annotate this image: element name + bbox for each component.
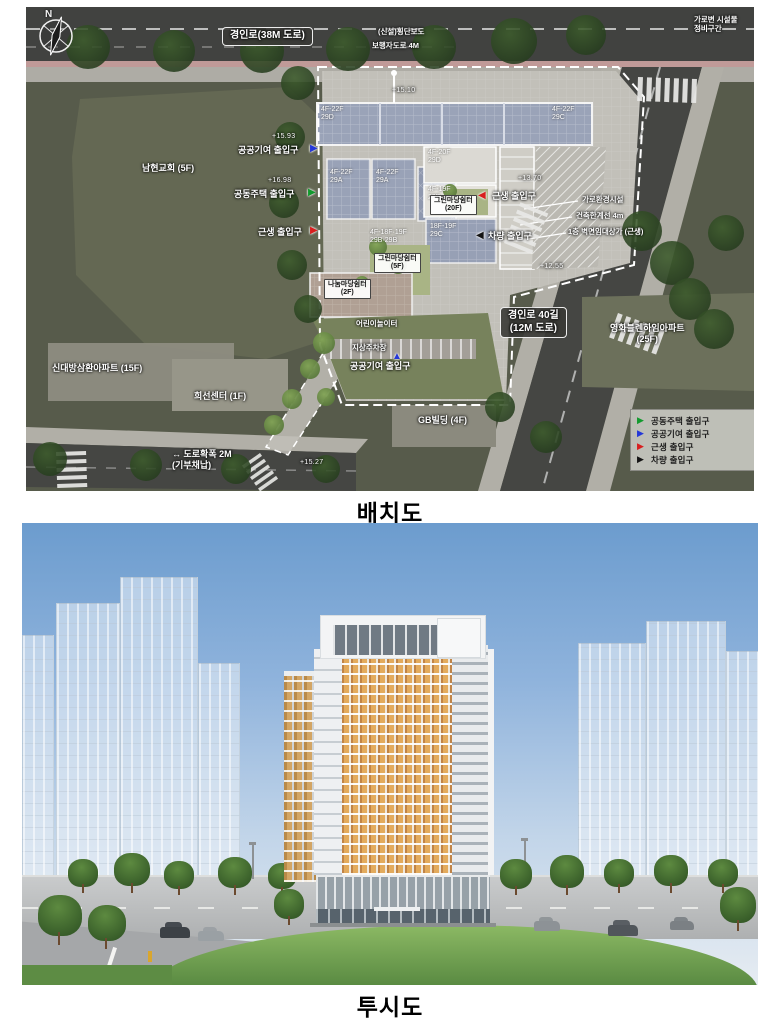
plan-annotation: 4F-22F 29A (376, 169, 399, 184)
plan-annotation: 건축한계선 4m (576, 211, 623, 220)
tree-icon (274, 889, 304, 925)
plan-annotation: 4F-22F 29D (321, 106, 344, 121)
background-building (646, 621, 726, 877)
tree-icon (218, 857, 252, 895)
tree-icon (604, 859, 634, 893)
plan-annotation: ▶ (310, 225, 318, 237)
background-building (120, 577, 198, 877)
tree-icon (164, 861, 194, 895)
legend-arrow-icon: ▶ (637, 415, 651, 426)
plan-annotation: 경인로 40길 (12M 도로) (500, 307, 567, 338)
plan-annotation: 공공기여 출입구 (238, 145, 298, 156)
car-icon (534, 921, 560, 931)
tower-right-pier (452, 645, 488, 875)
background-building (726, 651, 758, 877)
tree-icon (300, 359, 320, 379)
crown-panel (437, 618, 481, 658)
plan-annotation: +15.27 (300, 459, 323, 467)
north-compass: N (32, 11, 80, 64)
plan-annotation: 근생 출입구 (492, 191, 536, 202)
plan-annotation: 그린마당쉼터 (20F) (430, 195, 477, 215)
legend-label: 차량 출입구 (651, 454, 694, 466)
legend-item: ▶공동주택 출입구 (637, 414, 754, 427)
plan-annotation: 4F-20F 29D (428, 149, 451, 164)
legend-rows: ▶공동주택 출입구▶공공기여 출입구▶근생 출입구▶차량 출입구 (637, 414, 754, 466)
plan-annotation: 18F-19F 29C (430, 223, 456, 238)
perspective-caption: 투시도 (0, 988, 780, 1022)
car-icon (670, 921, 694, 930)
legend-label: 근생 출입구 (651, 441, 694, 453)
crown-recess (333, 625, 439, 655)
tree-icon (566, 15, 606, 55)
tree-icon (720, 887, 756, 931)
legend-item: ▶차량 출입구 (637, 453, 754, 466)
tower-crown (320, 615, 486, 659)
plan-annotation: 근생 출입구 (258, 227, 302, 238)
tree-icon (654, 855, 688, 893)
plan-annotation: 가로환경시설 (582, 195, 623, 204)
tower-edge-fin (488, 649, 494, 875)
legend-arrow-icon: ▶ (637, 441, 651, 452)
tree-icon (68, 859, 98, 893)
tree-icon (485, 392, 515, 422)
plan-annotation: 1층 벽면임대상가 (근생) (568, 227, 643, 236)
plan-annotation: 가로변 시설물 정비구간 (694, 15, 737, 33)
car-icon (198, 931, 224, 941)
plan-annotation: 영화블렌하임아파트 (25F) (610, 323, 685, 345)
plan-annotation: 남현교회 (5F) (142, 163, 194, 174)
tree-icon (491, 18, 537, 64)
plan-annotation: 4F-22F 29C (552, 106, 575, 121)
plan-annotation: (신설)횡단보도 (378, 27, 424, 36)
tree-icon (88, 905, 126, 949)
tree-icon (317, 388, 335, 406)
plan-annotation: ▶ (310, 143, 318, 155)
plan-annotation: 희선센터 (1F) (194, 391, 246, 402)
background-building (56, 603, 120, 877)
tree-icon (326, 27, 370, 71)
plan-annotation: 나눔마당쉼터 (2F) (324, 279, 371, 299)
plan-annotation: 4F-22F 29A (330, 169, 353, 184)
legend-arrow-icon: ▶ (637, 454, 651, 465)
tree-icon (38, 895, 82, 945)
car-icon (160, 927, 190, 938)
tree-icon (277, 250, 307, 280)
podium (316, 875, 490, 909)
tree-icon (33, 442, 67, 476)
legend-arrow-icon: ▶ (637, 428, 651, 439)
tree-icon (294, 295, 322, 323)
tree-icon (530, 421, 562, 453)
background-building (578, 643, 646, 877)
tree-icon (114, 853, 150, 893)
plan-annotation: +15.10 (392, 87, 415, 95)
compass-icon (32, 11, 80, 59)
plan-annotation: 공동주택 출입구 (234, 189, 294, 200)
plan-annotation: 보행자도로 4M (372, 41, 419, 50)
tree-icon (282, 389, 302, 409)
legend-item: ▶근생 출입구 (637, 440, 754, 453)
perspective-figure (22, 523, 758, 985)
tower-left-pier (314, 649, 342, 875)
tower-facade-orange (342, 655, 452, 875)
tree-icon (281, 66, 315, 100)
street-light (252, 845, 254, 879)
site-plan-figure: N 경인로(38M 도로)경인로 40길 (12M 도로)+15.10+15.9… (26, 7, 754, 491)
bollard (148, 951, 152, 962)
tree-icon (694, 309, 734, 349)
plan-annotation: ▶ (308, 187, 316, 199)
plan-annotation: ▲ (392, 351, 402, 363)
tree-icon (153, 30, 195, 72)
plan-annotation: 경인로(38M 도로) (222, 27, 313, 46)
entrance-canopy (374, 907, 420, 911)
plan-annotation: ↔ 도로확폭 2M (기부채납) (172, 449, 232, 471)
plan-annotation: GB빌딩 (4F) (418, 415, 467, 426)
north-label: N (45, 9, 52, 20)
background-building (198, 663, 240, 877)
plan-annotation: 그린마당쉼터 (5F) (374, 253, 421, 273)
plan-annotation: 4F-18F·19F 29B·29B (370, 229, 407, 244)
legend-item: ▶공공기여 출입구 (637, 427, 754, 440)
plan-annotation: 신대방삼환아파트 (15F) (52, 363, 142, 374)
entrance-legend: ▶공동주택 출입구▶공공기여 출입구▶근생 출입구▶차량 출입구 (630, 409, 754, 471)
plan-annotation: +15.93 (272, 133, 295, 141)
background-building (22, 635, 54, 877)
car-icon (608, 925, 638, 936)
tree-icon (708, 215, 744, 251)
plan-annotation: ◀ (476, 230, 484, 242)
plan-annotation: 지상주차장 (352, 343, 387, 352)
plan-annotation: 어린이놀이터 (356, 319, 397, 328)
plan-annotation: ◀ (478, 190, 486, 202)
plan-annotation: +12.55 (540, 263, 563, 271)
plan-annotation: +13.70 (518, 175, 541, 183)
tree-icon (313, 332, 335, 354)
tree-icon (264, 415, 284, 435)
plan-annotation: 차량 출입구 (488, 231, 532, 242)
legend-label: 공공기여 출입구 (651, 428, 710, 440)
tree-icon (550, 855, 584, 895)
plan-annotation: +16.98 (268, 177, 291, 185)
legend-label: 공동주택 출입구 (651, 415, 710, 427)
tower-base (310, 923, 496, 927)
tree-icon (500, 859, 532, 895)
lawn-left (22, 965, 172, 985)
tree-icon (130, 449, 162, 481)
